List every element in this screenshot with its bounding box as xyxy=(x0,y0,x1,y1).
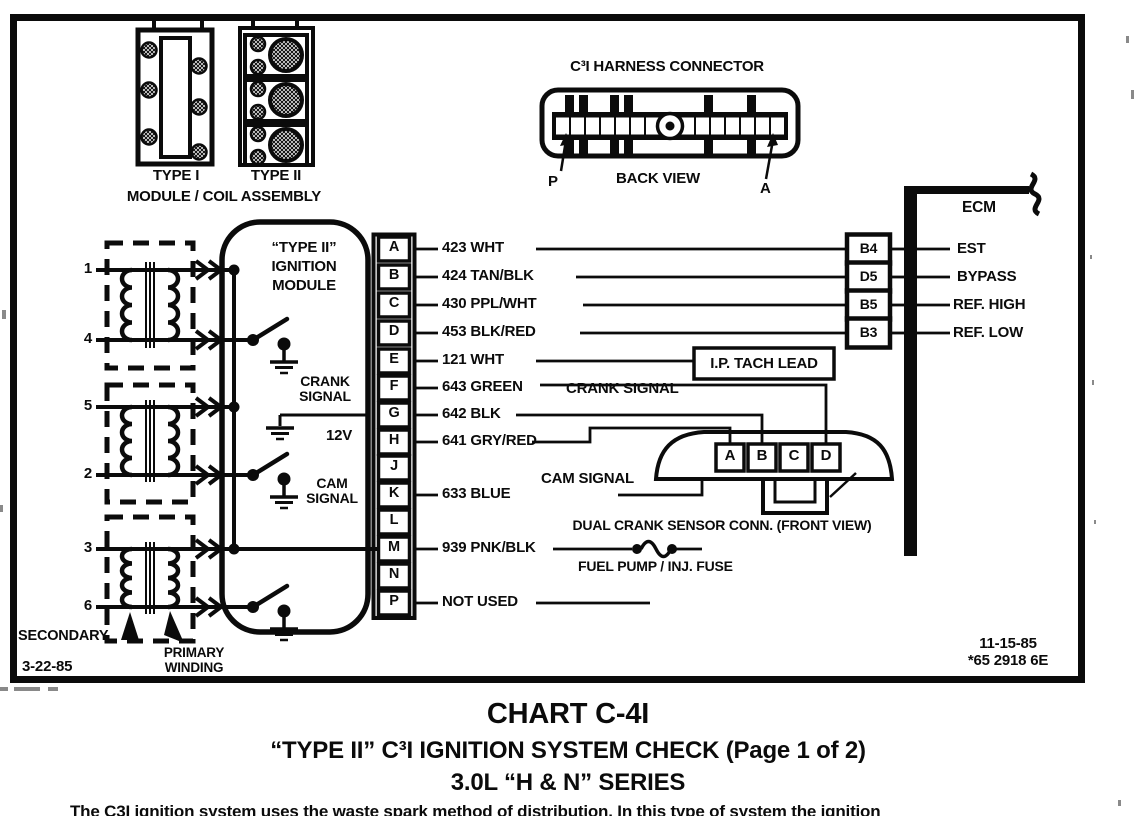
module-pin-h: H xyxy=(378,433,410,449)
chart-subtitle: “TYPE II” C³I IGNITION SYSTEM CHECK (Pag… xyxy=(0,738,1136,764)
wire-430-ppl-wht: 430 PPL/WHT xyxy=(442,296,537,312)
module-12v-label: 12V xyxy=(326,428,352,444)
diagram-linework xyxy=(0,0,1136,816)
ecm-signal-bypass: BYPASS xyxy=(957,269,1016,285)
primary-arrow xyxy=(164,611,184,643)
sensor-pin-d: D xyxy=(812,448,840,464)
module-crank-signal-label: CRANKSIGNAL xyxy=(285,374,365,404)
body-text-clipped: The C3I ignition system uses the waste s… xyxy=(70,803,1090,816)
harness-connector-title: C³I HARNESS CONNECTOR xyxy=(554,59,780,75)
sensor-connector-drawing xyxy=(656,432,892,513)
coil-terminal-6: 6 xyxy=(70,598,92,614)
wire-939-pnk-blk: 939 PNK/BLK xyxy=(442,540,536,556)
module-switches xyxy=(247,319,298,640)
module-pin-a: A xyxy=(378,240,410,256)
module-pin-m: M xyxy=(378,540,410,556)
type2-module-drawing xyxy=(240,17,313,165)
harness-pin-p: P xyxy=(548,174,558,190)
module-pin-p: P xyxy=(378,594,410,610)
module-pin-d: D xyxy=(378,324,410,340)
ip-tach-lead-label: I.P. TACH LEAD xyxy=(694,356,834,372)
wire-423-wht: 423 WHT xyxy=(442,240,504,256)
coil-terminal-5: 5 xyxy=(70,398,92,414)
ecm-signal-ref-low: REF. LOW xyxy=(953,325,1023,341)
coil-terminal-4: 4 xyxy=(70,331,92,347)
wire-chevrons xyxy=(196,261,221,616)
wire-641-gry-red: 641 GRY/RED xyxy=(442,433,537,449)
coil-date: 3-22-85 xyxy=(22,659,72,675)
wire-453-blk-red: 453 BLK/RED xyxy=(442,324,536,340)
coil-terminal-1: 1 xyxy=(70,261,92,277)
crank-signal-label: CRANK SIGNAL xyxy=(566,381,679,397)
type1-label: TYPE I xyxy=(138,168,214,184)
scanned-wiring-diagram-page: TYPE I TYPE II MODULE / COIL ASSEMBLY C³… xyxy=(0,0,1136,816)
module-pin-k: K xyxy=(378,486,410,502)
coil-terminal-3: 3 xyxy=(70,540,92,556)
wire-break-squiggle xyxy=(1031,174,1039,214)
ecm-signal-est: EST xyxy=(957,241,986,257)
chart-title: CHART C-4I xyxy=(0,699,1136,730)
sensor-pin-b: B xyxy=(748,448,776,464)
module-pin-c: C xyxy=(378,296,410,312)
harness-pin-a: A xyxy=(760,181,771,197)
harness-connector-drawing xyxy=(542,90,798,179)
fuel-pump-fuse-label: FUEL PUMP / INJ. FUSE xyxy=(578,559,733,574)
wire-633-blue: 633 BLUE xyxy=(442,486,510,502)
module-coil-caption: MODULE / COIL ASSEMBLY xyxy=(118,189,330,205)
type2-label: TYPE II xyxy=(238,168,314,184)
module-pin-b: B xyxy=(378,268,410,284)
back-view-label: BACK VIEW xyxy=(608,171,708,187)
module-cam-signal-label: CAMSIGNAL xyxy=(292,476,372,506)
ecm-pin-d5: D5 xyxy=(847,269,890,284)
module-title: “TYPE II”IGNITIONMODULE xyxy=(248,239,360,295)
dual-crank-sensor-label: DUAL CRANK SENSOR CONN. (FRONT VIEW) xyxy=(542,518,902,533)
revision-date: 11-15-85 xyxy=(960,636,1056,652)
ecm-drawing xyxy=(847,174,1039,556)
module-pin-g: G xyxy=(378,406,410,422)
module-pin-l: L xyxy=(378,513,410,529)
ecm-pin-b4: B4 xyxy=(847,241,890,256)
ecm-label: ECM xyxy=(962,200,996,217)
secondary-label: SECONDARY xyxy=(18,629,108,645)
wire-643-green: 643 GREEN xyxy=(442,379,523,395)
sensor-pin-c: C xyxy=(780,448,808,464)
module-pin-n: N xyxy=(378,567,410,583)
wire-not-used: NOT USED xyxy=(442,594,518,610)
chart-series: 3.0L “H & N” SERIES xyxy=(0,770,1136,796)
wire-121-wht: 121 WHT xyxy=(442,352,504,368)
module-pin-e: E xyxy=(378,352,410,368)
type1-module-drawing xyxy=(138,18,212,164)
sensor-pin-a: A xyxy=(716,448,744,464)
wire-642-blk: 642 BLK xyxy=(442,406,501,422)
coil-terminal-2: 2 xyxy=(70,466,92,482)
ecm-signal-ref-high: REF. HIGH xyxy=(953,297,1025,313)
secondary-arrow xyxy=(121,612,139,640)
module-pin-f: F xyxy=(378,379,410,395)
wire-424-tan-blk: 424 TAN/BLK xyxy=(442,268,534,284)
module-pin-column xyxy=(374,235,415,619)
module-pin-j: J xyxy=(378,459,410,475)
revision-code: *65 2918 6E xyxy=(950,653,1066,669)
ecm-pin-b3: B3 xyxy=(847,325,890,340)
ecm-pin-b5: B5 xyxy=(847,297,890,312)
cam-signal-label: CAM SIGNAL xyxy=(541,471,634,487)
primary-winding-label: PRIMARYWINDING xyxy=(150,646,238,675)
